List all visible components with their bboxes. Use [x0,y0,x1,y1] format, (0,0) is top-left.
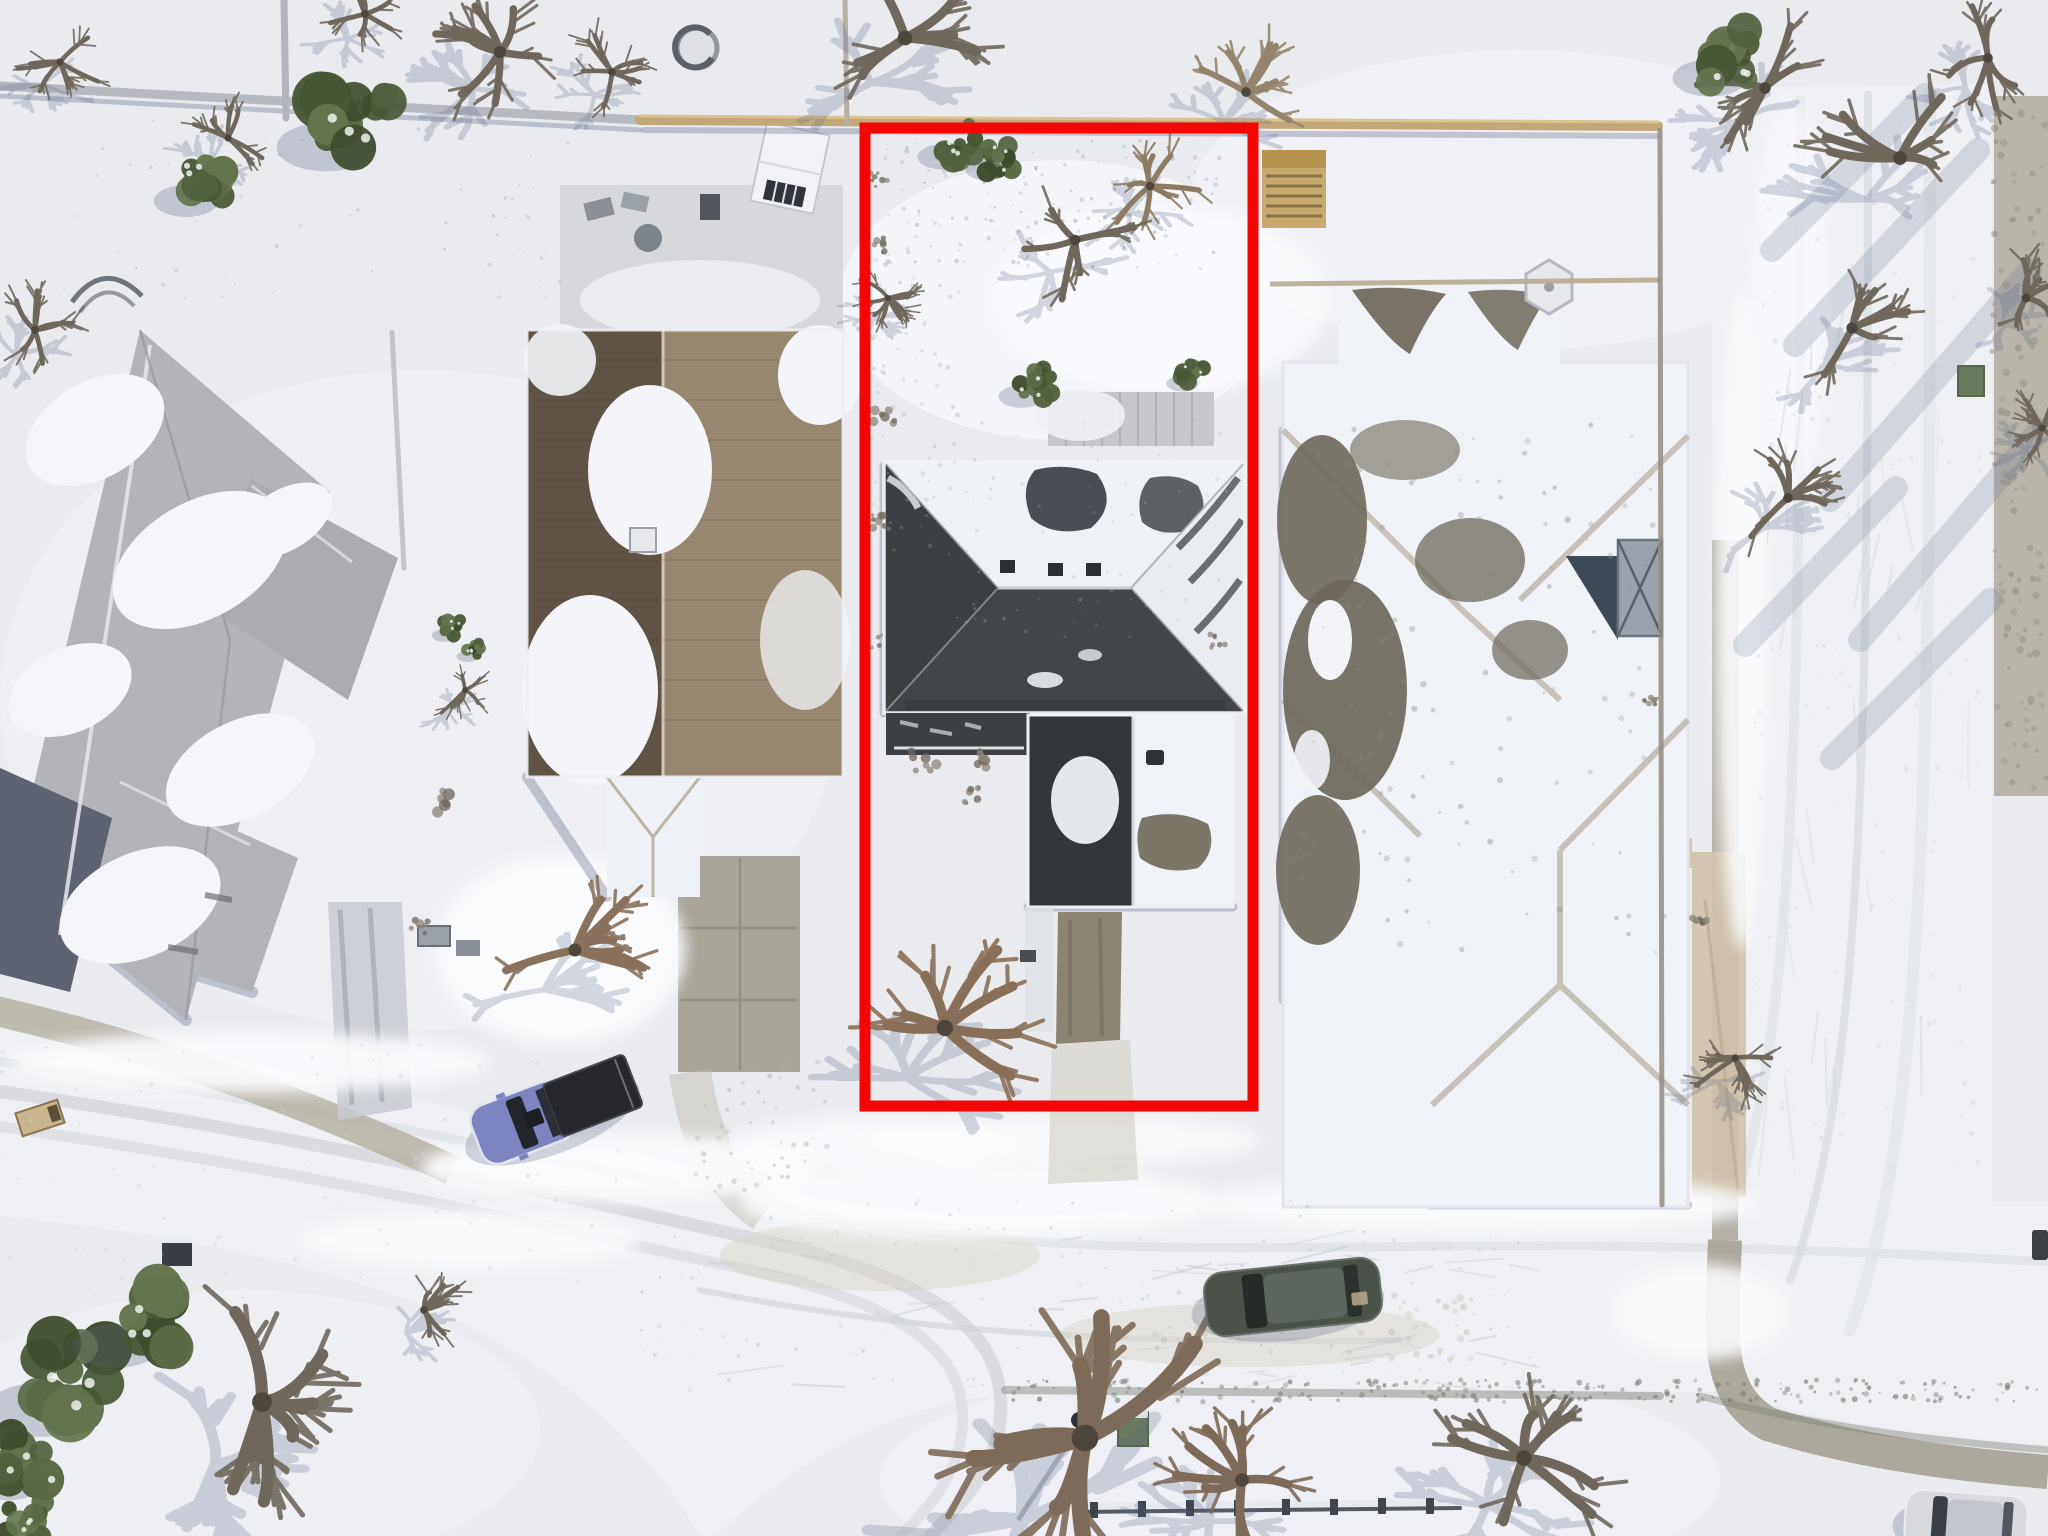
cleared-driveway [1056,912,1122,1044]
fence-vertical-left [284,0,286,118]
firepit-table [675,27,717,68]
patio-table [634,224,662,252]
front-step [1020,950,1036,962]
house-right [1270,260,1688,1207]
louvered-shed [1262,150,1326,228]
aerial-photo [0,0,2048,1536]
utility-equipment [456,940,480,956]
fence-right-property [1660,130,1662,1205]
front-walk [1025,907,1053,1032]
object-right-edge [2032,1230,2048,1260]
utility-box-green-small [1958,366,1984,396]
chimney [630,528,656,552]
utility-equipment [418,926,450,946]
bottom-fence-snowcap [1075,1502,1460,1506]
roof-mark [1146,750,1164,765]
backyard-patio-center-house [1035,389,1214,446]
white-car-partial [1890,1488,2029,1536]
aerial-photo-container [0,0,2048,1536]
gazebo [1526,260,1572,314]
grill [700,194,720,220]
mailbox-dark [162,1236,192,1266]
